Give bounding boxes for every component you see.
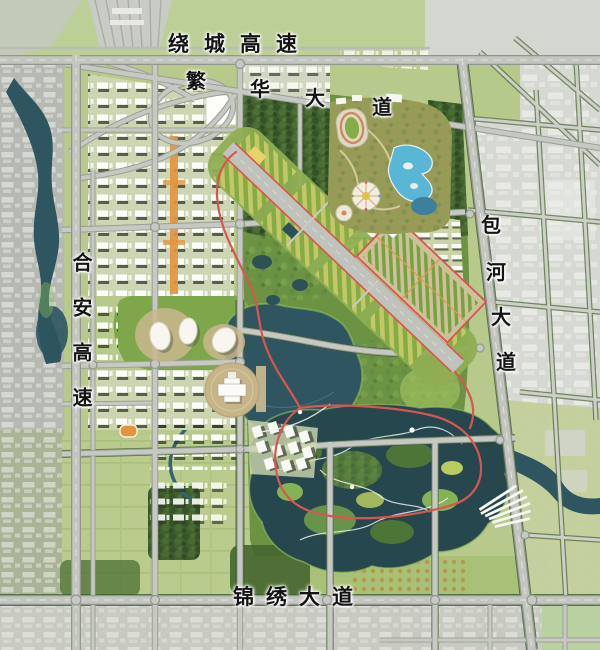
orange-pedestrian-spine bbox=[170, 136, 178, 294]
amusement-lake bbox=[411, 197, 437, 215]
rail-yard bbox=[88, 0, 172, 48]
amusement-park bbox=[328, 93, 452, 234]
circular-plaza bbox=[205, 363, 266, 417]
running-track bbox=[120, 425, 137, 437]
master-plan-artwork bbox=[0, 0, 600, 650]
master-plan-map: 绕城高速 繁华大道 合安高速 包河大道 锦绣大道 bbox=[0, 0, 600, 650]
existing-city-bottom bbox=[0, 602, 600, 650]
